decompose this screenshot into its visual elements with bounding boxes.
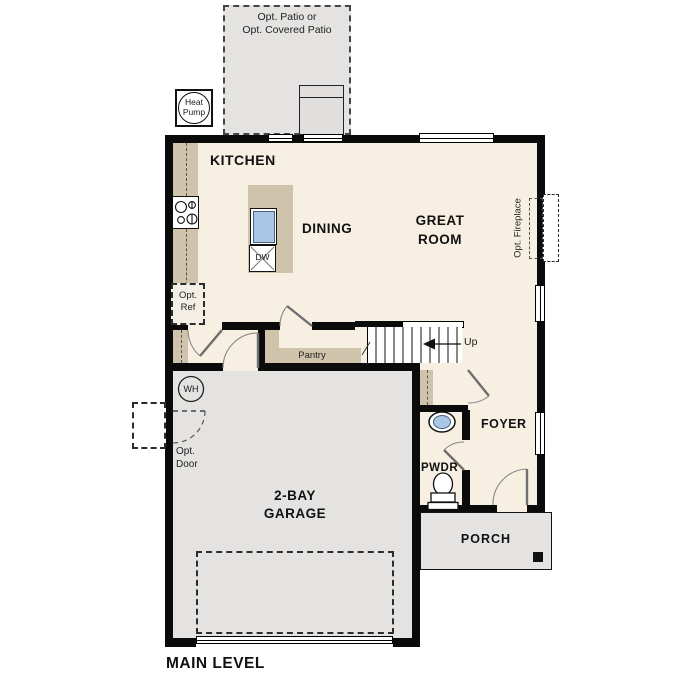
floor-plan: Opt. Patio or Opt. Covered Patio Heat Pu… xyxy=(0,0,687,687)
opt-door-swing xyxy=(173,411,205,443)
up-arrow-icon xyxy=(423,339,461,350)
patio-label: Opt. Patio or Opt. Covered Patio xyxy=(223,11,351,37)
garage-entry-door xyxy=(223,333,258,368)
front-door xyxy=(493,469,527,505)
pantry-label: Pantry xyxy=(263,350,361,362)
foyer-label: FOYER xyxy=(481,417,527,433)
vanity-sink-icon xyxy=(429,412,455,432)
porch-label: PORCH xyxy=(420,532,552,548)
garage-label: 2-BAY GARAGE xyxy=(245,487,345,523)
plan-geometry xyxy=(0,0,687,687)
opt-fireplace-label: Opt. Fireplace xyxy=(513,192,525,265)
burner-icons xyxy=(176,201,198,224)
pwdr-label: PWDR xyxy=(421,461,458,475)
kitchen-hall-door xyxy=(188,330,222,356)
dining-label: DINING xyxy=(302,221,352,238)
main-level-title: MAIN LEVEL xyxy=(166,654,265,673)
heat-pump-label: Heat Pump xyxy=(175,98,213,117)
opt-ref-label: Opt. Ref xyxy=(171,290,205,313)
stair-break-mark xyxy=(362,342,370,355)
toilet-icon xyxy=(428,473,458,510)
stair-treads xyxy=(376,327,457,363)
pantry-door xyxy=(280,306,312,326)
water-heater-label: WH xyxy=(178,384,204,395)
up-label: Up xyxy=(464,336,477,349)
opt-door-label: Opt. Door xyxy=(176,446,198,471)
coat-closet-door xyxy=(468,370,489,403)
great-room-label: GREAT ROOM xyxy=(405,211,475,249)
dishwasher-label: DW xyxy=(249,252,276,263)
kitchen-label: KITCHEN xyxy=(210,152,276,170)
